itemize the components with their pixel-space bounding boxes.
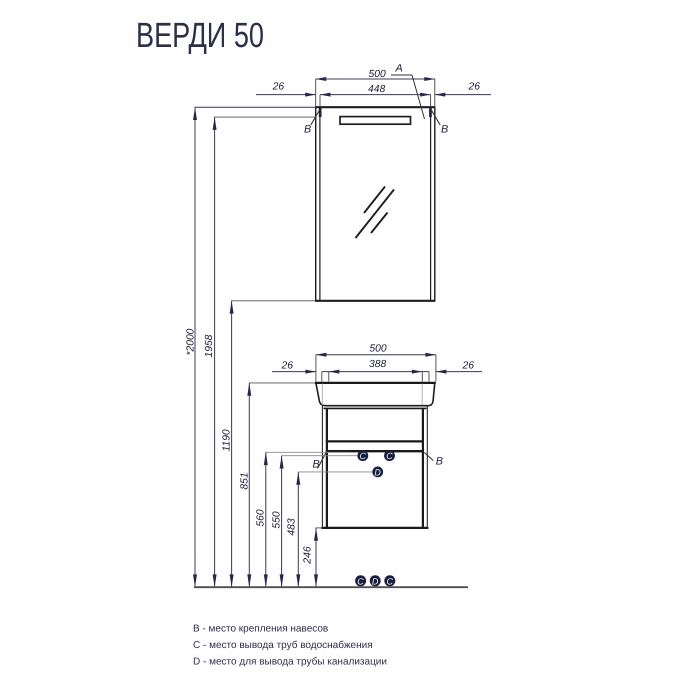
svg-text:246: 246 xyxy=(303,546,314,564)
svg-text:ВЕРДИ 50: ВЕРДИ 50 xyxy=(136,16,264,55)
svg-text:26: 26 xyxy=(281,361,294,372)
svg-text:550: 550 xyxy=(272,511,283,528)
svg-text:560: 560 xyxy=(256,509,267,526)
svg-text:C: C xyxy=(387,576,394,586)
svg-text:B: B xyxy=(436,456,443,468)
svg-text:C - место вывода труб водоснаб: C - место вывода труб водоснабжения xyxy=(193,640,373,651)
svg-text:26: 26 xyxy=(462,361,475,372)
svg-text:388: 388 xyxy=(369,359,386,370)
svg-text:26: 26 xyxy=(468,82,481,93)
svg-text:448: 448 xyxy=(368,84,385,95)
svg-text:B: B xyxy=(313,459,320,471)
svg-text:D - место для вывода трубы кан: D - место для вывода трубы канализации xyxy=(193,657,387,668)
svg-text:C: C xyxy=(357,576,364,586)
svg-text:*2000: *2000 xyxy=(186,328,197,355)
svg-text:C: C xyxy=(360,451,367,461)
svg-text:1190: 1190 xyxy=(222,429,233,451)
svg-text:B: B xyxy=(304,123,311,135)
svg-text:B: B xyxy=(441,123,448,135)
svg-text:B - место крепления навесов: B - место крепления навесов xyxy=(193,624,328,635)
svg-text:A: A xyxy=(395,63,403,75)
svg-text:C: C xyxy=(386,451,393,461)
svg-text:500: 500 xyxy=(369,343,386,354)
svg-text:26: 26 xyxy=(272,82,285,93)
svg-text:483: 483 xyxy=(287,518,298,535)
svg-text:500: 500 xyxy=(369,69,386,80)
svg-text:D: D xyxy=(374,467,381,477)
svg-text:1958: 1958 xyxy=(204,334,215,357)
svg-text:D: D xyxy=(372,576,379,586)
svg-text:851: 851 xyxy=(240,472,251,489)
